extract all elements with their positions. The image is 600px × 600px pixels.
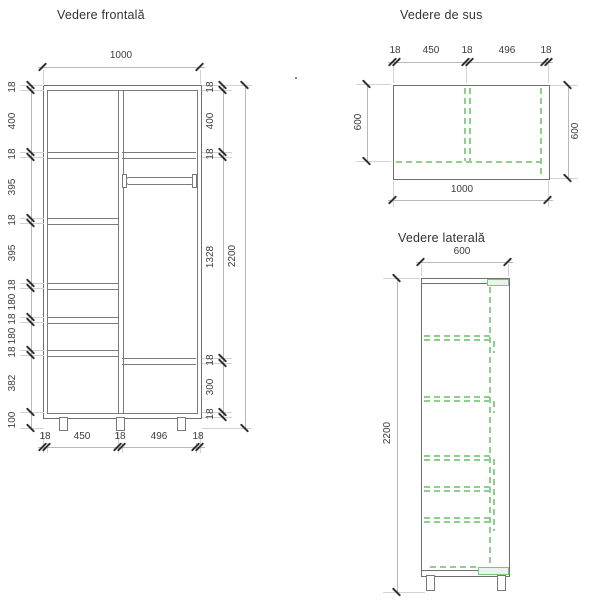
extension-line <box>550 178 578 179</box>
dimension-line <box>568 85 569 178</box>
extension-line <box>356 84 391 85</box>
shelf-line <box>122 358 196 365</box>
dim-label: 2200 <box>227 236 239 276</box>
dim-label: 100 <box>7 400 19 440</box>
extension-line <box>393 181 394 207</box>
hidden-side-edge-line <box>540 88 542 176</box>
leg <box>59 417 68 431</box>
back-panel-bottom-edge <box>478 567 509 575</box>
dim-label: 18 <box>447 45 487 57</box>
bottom-panel-edge <box>422 570 480 571</box>
top-view-outline <box>393 85 550 180</box>
hidden-partition-line <box>464 88 466 161</box>
dimension-line <box>245 85 246 428</box>
extension-line <box>383 592 425 593</box>
dim-label: 496 <box>487 45 527 57</box>
hidden-back-panel-line <box>489 287 491 565</box>
side-view-outline <box>421 278 510 577</box>
shelf-line <box>122 152 196 159</box>
hidden-back-panel-line <box>396 161 546 163</box>
shelf-line <box>47 283 118 290</box>
dim-label: 18 <box>100 431 140 443</box>
hidden-shelf-line <box>424 455 493 457</box>
front-view-title: Vedere frontală <box>57 8 145 22</box>
extension-line <box>466 64 467 83</box>
hidden-shelf-line <box>424 396 493 398</box>
hidden-shelf-line <box>424 459 493 461</box>
dimension-line <box>223 85 224 417</box>
extension-line <box>393 64 394 83</box>
dim-label: 18 <box>526 45 566 57</box>
dim-label: 1000 <box>442 184 482 196</box>
vertical-partition <box>118 90 124 414</box>
technical-drawing-canvas: Vedere frontală 1000 <box>0 0 600 600</box>
dimension-line <box>388 200 553 201</box>
extension-line <box>356 161 391 162</box>
dim-label: 1000 <box>101 50 141 62</box>
dim-label: 18 <box>375 45 415 57</box>
dim-label: 1328 <box>205 237 217 277</box>
dim-label: 450 <box>411 45 451 57</box>
extension-line <box>508 264 509 276</box>
dim-label: 600 <box>353 102 365 142</box>
side-view-title: Vedere laterală <box>398 231 485 245</box>
extension-line <box>383 278 420 279</box>
extension-line <box>421 264 422 276</box>
hidden-partition-line <box>469 88 471 161</box>
hidden-drawer-edge-line <box>493 459 495 531</box>
shelf-line <box>47 218 118 225</box>
rod-bracket <box>122 174 127 188</box>
dimension-line <box>416 262 513 263</box>
top-view-title: Vedere de sus <box>400 8 483 22</box>
hidden-bottom-line <box>430 566 478 568</box>
leg <box>177 417 186 431</box>
leg <box>497 575 506 591</box>
dim-label: 18 <box>178 431 218 443</box>
dim-label: 600 <box>442 246 482 258</box>
hidden-shelf-line <box>424 339 493 341</box>
extension-line <box>548 181 549 207</box>
dim-label: 382 <box>7 363 19 403</box>
hidden-shelf-line <box>424 486 493 488</box>
dimension-line <box>38 67 205 68</box>
hidden-shelf-line <box>424 517 493 519</box>
stray-dot <box>295 77 297 79</box>
hidden-shelf-line <box>424 521 493 523</box>
dim-label: 2200 <box>382 413 394 453</box>
leg <box>426 575 435 591</box>
hidden-shelf-line <box>424 490 493 492</box>
dim-label: 600 <box>570 111 582 151</box>
dimension-line <box>367 84 368 162</box>
leg <box>116 417 125 431</box>
extension-line <box>548 64 549 83</box>
extension-line <box>43 70 44 84</box>
hidden-shelf-line <box>424 335 493 337</box>
hidden-edge-line <box>493 341 495 353</box>
dim-label: 18 <box>25 431 65 443</box>
rod-bracket <box>192 174 197 188</box>
dimension-line <box>397 278 398 592</box>
dim-label: 496 <box>139 431 179 443</box>
drawer-divider-line <box>47 317 118 324</box>
hidden-shelf-line <box>424 400 493 402</box>
drawer-divider-line <box>47 350 118 357</box>
back-panel-top-edge <box>487 279 509 286</box>
dimension-line <box>31 85 32 428</box>
hanging-rod <box>126 177 194 185</box>
shelf-line <box>47 152 118 159</box>
hidden-edge-line <box>493 401 495 413</box>
dim-label: 450 <box>62 431 102 443</box>
dim-label: 18 <box>205 134 217 174</box>
extension-line <box>200 70 201 84</box>
extension-line <box>550 85 578 86</box>
